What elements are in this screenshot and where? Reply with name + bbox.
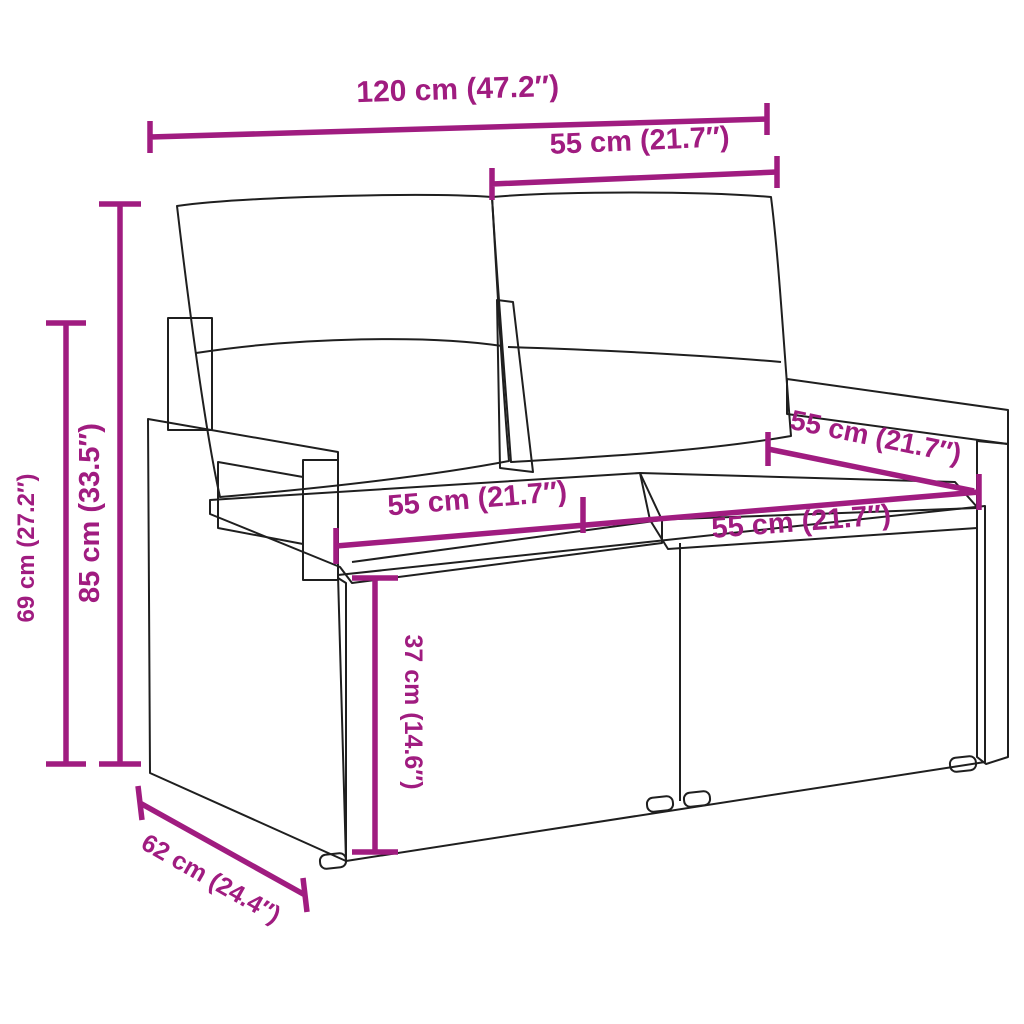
- back-cushion-right-crease: [508, 347, 781, 362]
- sofa-diagram-svg: 120 cm (47.2″) 55 cm (21.7″) 85 cm (33.5…: [0, 0, 1024, 1024]
- dim-overall-depth: 62 cm (24.4″): [137, 786, 307, 929]
- dim-overall-width-label: 120 cm (47.2″): [356, 70, 560, 109]
- back-cushion-left-crease: [196, 339, 502, 353]
- dim-seat-height-line: [352, 578, 398, 852]
- dim-arm-height-label: 69 cm (27.2″): [13, 474, 40, 623]
- dimension-diagram: 120 cm (47.2″) 55 cm (21.7″) 85 cm (33.5…: [0, 0, 1024, 1024]
- back-cushion-right: [492, 193, 791, 463]
- dim-backrest-width-label: 55 cm (21.7″): [549, 121, 730, 161]
- dim-backrest-width: 55 cm (21.7″): [492, 121, 777, 200]
- base-front-panel: [338, 506, 985, 861]
- left-arm-front-post: [303, 460, 338, 580]
- left-arm-panel: [148, 419, 346, 861]
- dim-seat-height: 37 cm (14.6″): [352, 578, 427, 852]
- dim-seat-width-right-label: 55 cm (21.7″): [710, 499, 892, 545]
- back-cushion-left: [177, 195, 509, 497]
- dim-seat-height-label: 37 cm (14.6″): [399, 634, 427, 789]
- dim-overall-height-label: 85 cm (33.5″): [74, 423, 106, 603]
- dim-overall-height: 85 cm (33.5″): [74, 204, 141, 764]
- dim-seat-width-left-label: 55 cm (21.7″): [386, 476, 568, 523]
- center-back-post: [497, 300, 533, 472]
- dimension-annotations: 120 cm (47.2″) 55 cm (21.7″) 85 cm (33.5…: [13, 70, 979, 930]
